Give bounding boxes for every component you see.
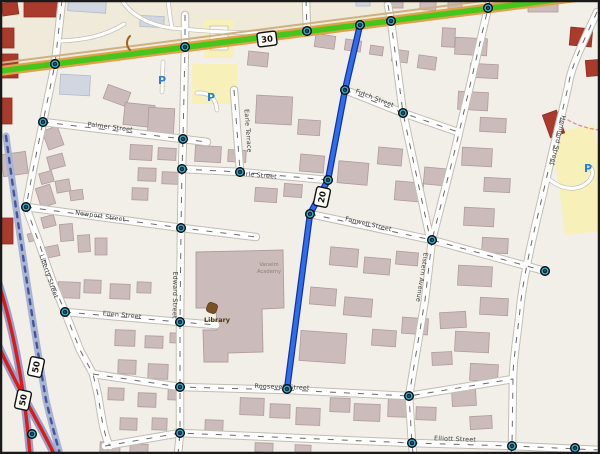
building [369, 45, 383, 56]
node-center [54, 63, 56, 65]
node-center [182, 138, 184, 140]
building [464, 207, 495, 227]
node-center [179, 321, 181, 323]
node-center [239, 171, 241, 173]
building [395, 251, 418, 266]
building [132, 188, 148, 201]
route-shield-50: 50 [14, 389, 32, 410]
building [270, 404, 290, 419]
node-center [31, 433, 33, 435]
building [363, 257, 390, 275]
building [298, 119, 321, 135]
node-center [42, 121, 44, 123]
building [480, 297, 509, 315]
node-center [25, 206, 27, 208]
academy-label: Vanelm [259, 262, 278, 268]
building [377, 147, 402, 166]
node-center [544, 270, 546, 272]
node-center [180, 227, 182, 229]
map-node[interactable] [507, 441, 516, 450]
building [330, 398, 350, 413]
node-center [306, 30, 308, 32]
building [417, 55, 437, 70]
node-center [402, 112, 404, 114]
route-shield-20: 20 [313, 186, 331, 207]
building [55, 179, 71, 193]
map-node[interactable] [323, 175, 332, 184]
building [108, 388, 124, 401]
building [432, 351, 453, 365]
building [343, 297, 372, 317]
node-center [574, 447, 576, 449]
building [152, 418, 167, 431]
building [115, 330, 136, 347]
street-label: Elliott Street [434, 435, 477, 443]
node-center [390, 20, 392, 22]
building [255, 443, 273, 453]
parking-icon[interactable]: P [158, 74, 166, 87]
parking-icon[interactable]: P [584, 162, 592, 175]
building [457, 265, 492, 287]
node-center [179, 432, 181, 434]
building [120, 418, 137, 431]
building [354, 404, 381, 422]
academy-label: Academy [257, 269, 281, 275]
building [296, 408, 321, 426]
route-shield-30: 30 [257, 31, 278, 47]
map-node[interactable] [407, 438, 416, 447]
map-node[interactable] [50, 59, 59, 68]
map-node[interactable] [27, 429, 36, 438]
map-node[interactable] [178, 134, 187, 143]
map-node[interactable] [355, 20, 364, 29]
building [462, 147, 493, 167]
building [284, 183, 303, 197]
node-center [327, 179, 329, 181]
street-label: Edward Street [171, 271, 179, 319]
building [454, 331, 489, 353]
map-node[interactable] [21, 202, 30, 211]
map-node[interactable] [404, 391, 413, 400]
building [470, 415, 493, 429]
map-node[interactable] [38, 117, 47, 126]
building [78, 235, 91, 253]
map-node[interactable] [235, 167, 244, 176]
map-node[interactable] [60, 307, 69, 316]
building [299, 154, 324, 173]
library-label: Library [204, 316, 231, 324]
building [247, 51, 268, 67]
map-node[interactable] [176, 223, 185, 232]
map-node[interactable] [177, 164, 186, 173]
node-center [286, 388, 288, 390]
map-node[interactable] [398, 108, 407, 117]
map-node[interactable] [483, 3, 492, 12]
building [95, 238, 107, 255]
building [195, 145, 222, 162]
building [314, 34, 336, 50]
map-node[interactable] [305, 209, 314, 218]
building [1, 1, 19, 16]
map-node[interactable] [180, 42, 189, 51]
map-node[interactable] [340, 85, 349, 94]
building [162, 172, 178, 185]
node-center [359, 24, 361, 26]
map-canvas[interactable]: Palmer StreetNewport StreetEllen StreetE… [0, 0, 600, 454]
node-center [179, 386, 181, 388]
map-node[interactable] [302, 26, 311, 35]
building [255, 95, 292, 125]
building [329, 247, 358, 267]
building [110, 284, 131, 300]
map-node[interactable] [175, 317, 184, 326]
building [118, 360, 136, 375]
building [148, 364, 169, 380]
building [309, 287, 336, 306]
building [240, 398, 265, 416]
building [158, 148, 177, 161]
building [145, 336, 163, 349]
map-svg[interactable]: Palmer StreetNewport StreetEllen StreetE… [0, 0, 600, 454]
building [84, 280, 101, 294]
building [299, 330, 347, 363]
building [59, 74, 90, 96]
building [24, 0, 60, 17]
route-shield-50: 50 [27, 356, 45, 377]
building [416, 407, 436, 421]
building [137, 282, 151, 293]
map-node[interactable] [175, 428, 184, 437]
building [371, 329, 396, 347]
map-node[interactable] [386, 16, 395, 25]
node-center [487, 7, 489, 9]
node-center [181, 168, 183, 170]
building [484, 177, 511, 192]
node-center [64, 311, 66, 313]
building [480, 117, 507, 132]
building [59, 223, 73, 241]
node-center [344, 89, 346, 91]
building [138, 168, 156, 182]
shield-ref: 30 [261, 34, 274, 45]
node-center [408, 395, 410, 397]
map-node[interactable] [570, 443, 579, 452]
map-node[interactable] [282, 384, 291, 393]
map-node[interactable] [427, 235, 436, 244]
node-center [431, 239, 433, 241]
building [69, 189, 83, 201]
building [337, 161, 369, 186]
building [255, 187, 278, 203]
parking-icon[interactable]: P [207, 91, 215, 104]
building [138, 393, 156, 408]
map-node[interactable] [540, 266, 549, 275]
building [440, 311, 467, 328]
node-center [184, 46, 186, 48]
map-node[interactable] [175, 382, 184, 391]
building [130, 144, 153, 160]
node-center [309, 213, 311, 215]
building [442, 28, 456, 48]
node-center [411, 442, 413, 444]
node-center [511, 445, 513, 447]
